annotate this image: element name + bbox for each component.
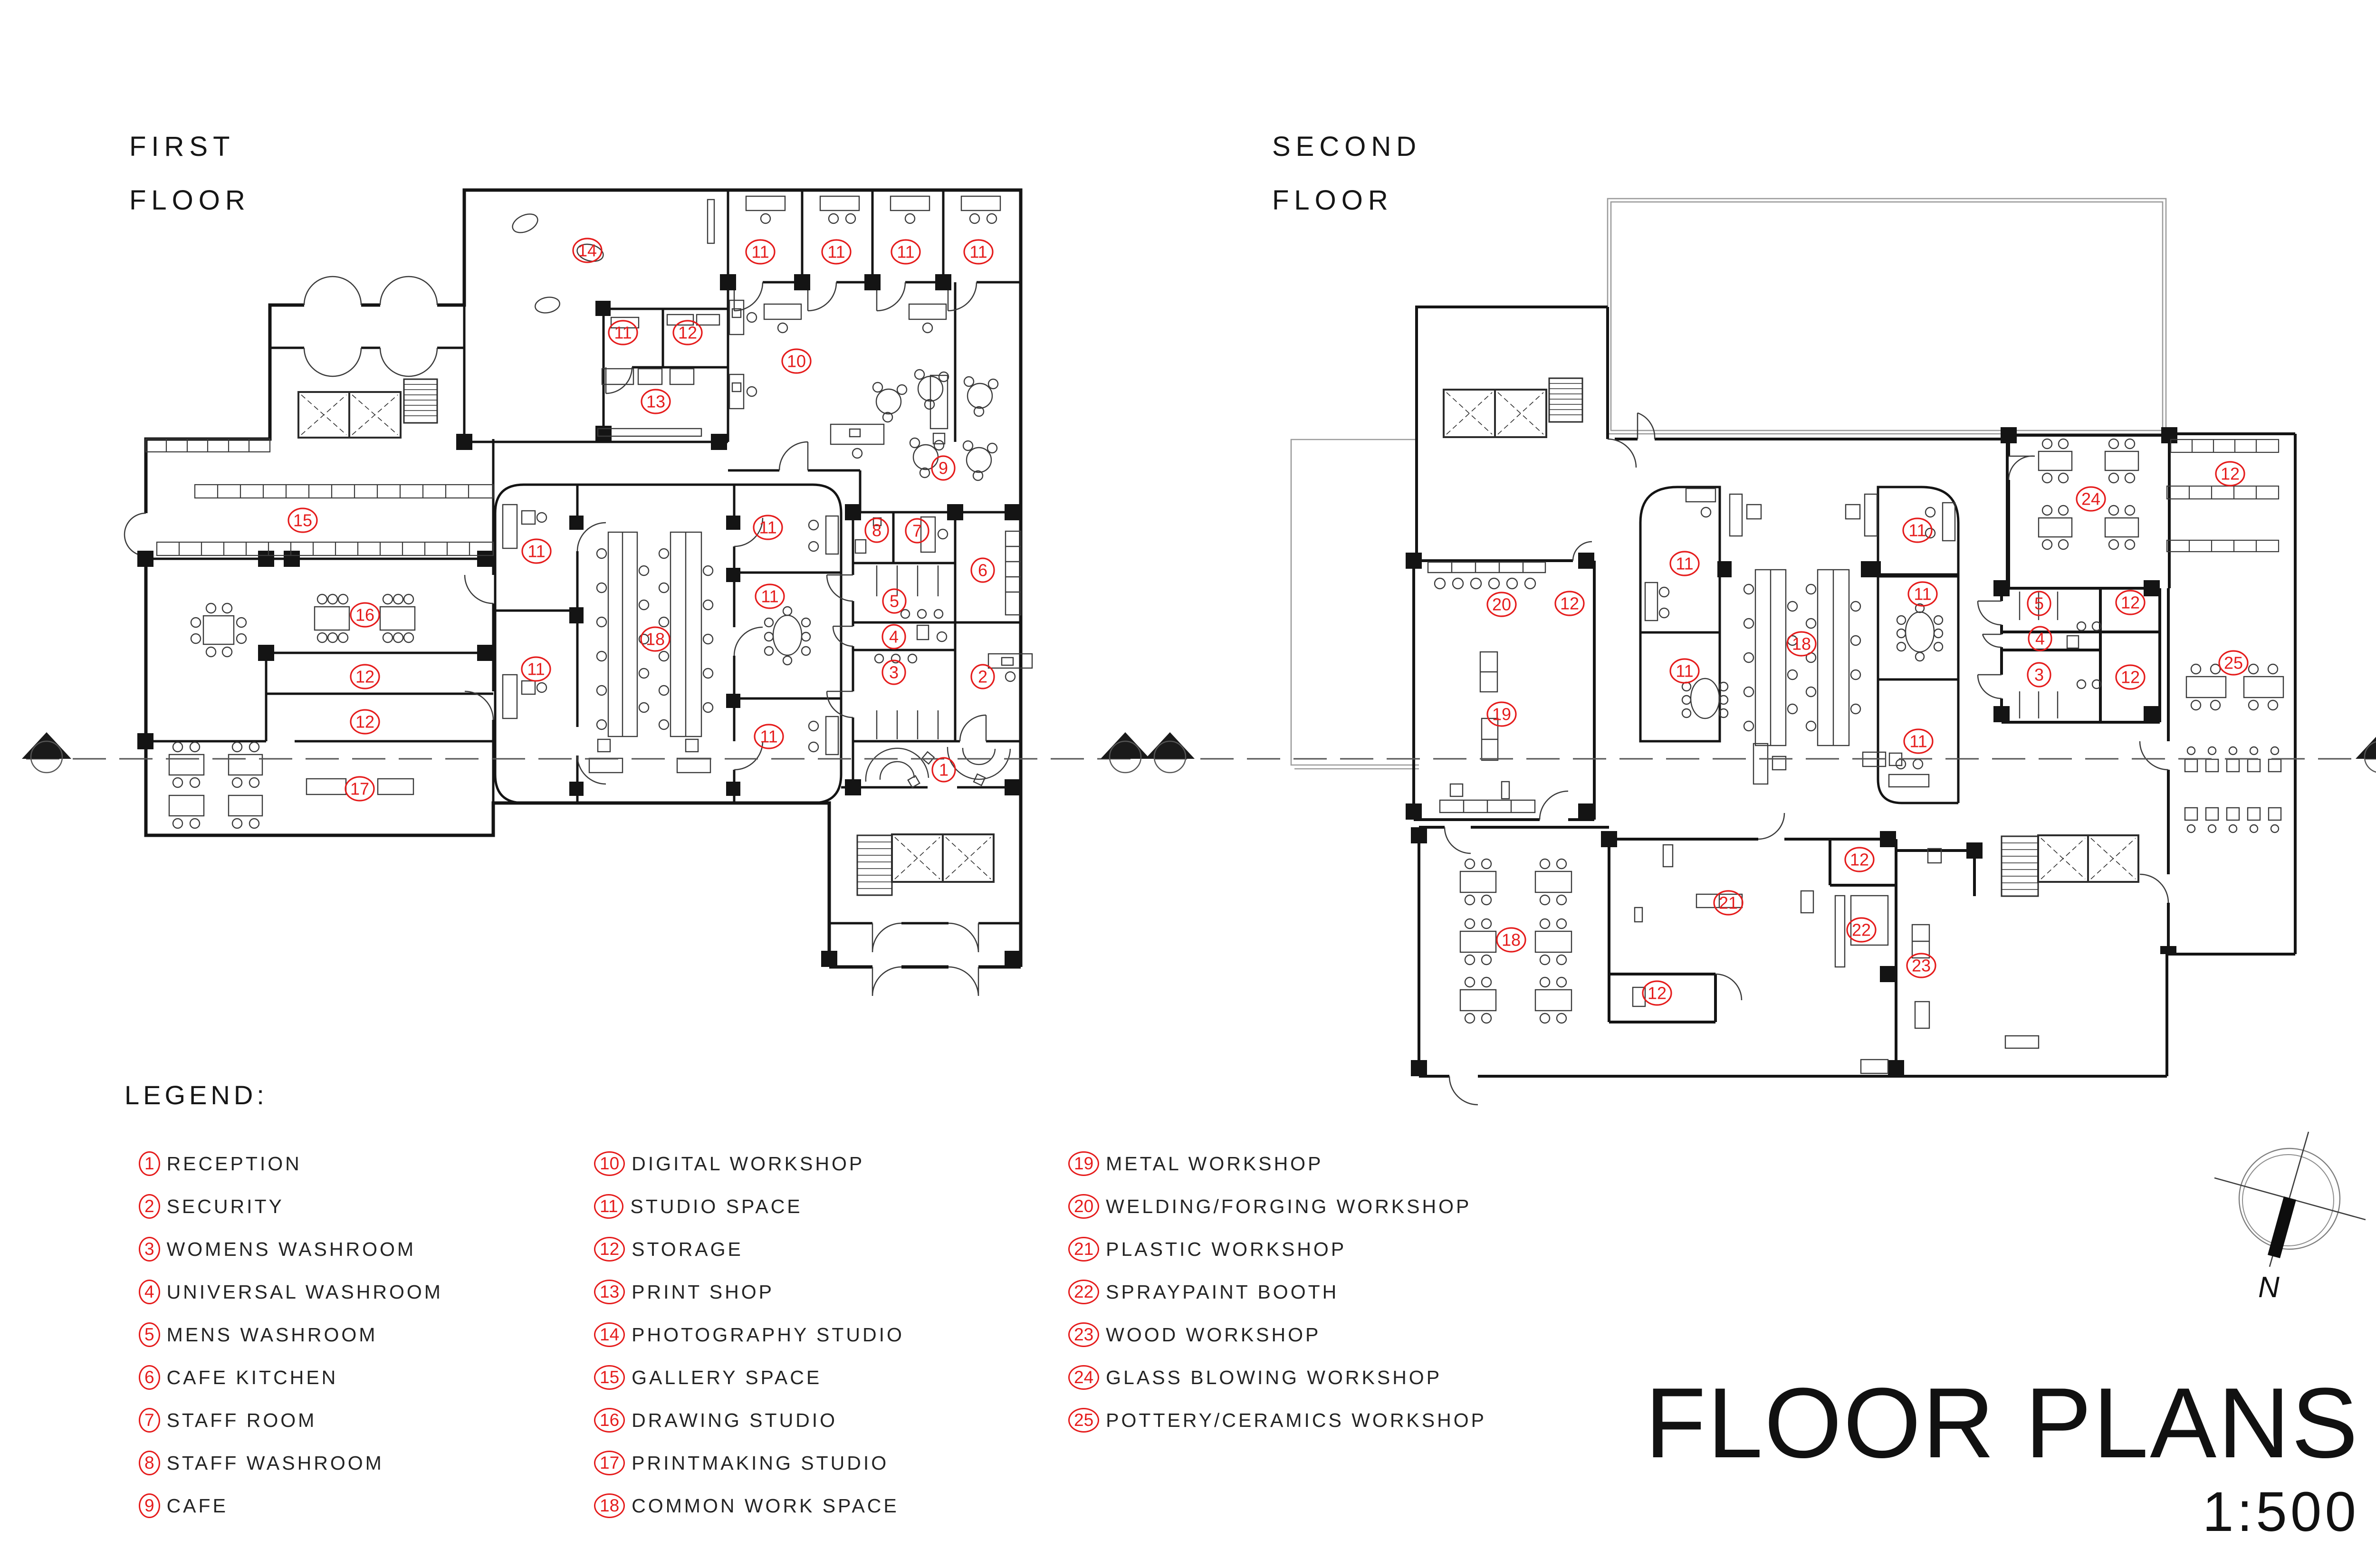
legend-item-number: 20: [1068, 1194, 1099, 1219]
room-marker-number: 12: [2221, 464, 2240, 484]
room-marker-number: 11: [751, 242, 769, 262]
cafe-tables: [873, 370, 998, 480]
legend-item-number: 15: [594, 1365, 625, 1390]
section-marker: [1101, 732, 1150, 773]
room-marker-number: 4: [889, 627, 899, 647]
room-marker-number: 5: [890, 592, 899, 611]
room-marker-number: 3: [889, 663, 899, 682]
first-floor-gallery-bands: [146, 439, 493, 555]
legend-item: 1RECEPTION: [139, 1142, 443, 1185]
legend-item-label: CAFE KITCHEN: [167, 1367, 338, 1389]
legend-column-1: 1RECEPTION2SECURITY3WOMENS WASHROOM4UNIV…: [139, 1142, 443, 1527]
legend-item: 14PHOTOGRAPHY STUDIO: [594, 1313, 904, 1356]
legend-item: 19METAL WORKSHOP: [1068, 1142, 1486, 1185]
legend-item-label: METAL WORKSHOP: [1106, 1153, 1323, 1175]
legend-item-label: UNIVERSAL WASHROOM: [167, 1281, 443, 1303]
legend-item: 9CAFE: [139, 1484, 443, 1527]
legend-item: 7STAFF ROOM: [139, 1399, 443, 1442]
drawing-sheet: N 14111111111112101391511118765161118412…: [0, 0, 2376, 1568]
room-marker-number: 11: [969, 242, 987, 262]
first-floor-interior-walls: [146, 190, 1021, 923]
legend-item-label: POTTERY/CERAMICS WORKSHOP: [1106, 1409, 1486, 1432]
section-marker: [1145, 732, 1195, 773]
room-marker-number: 16: [355, 605, 374, 625]
legend-item-number: 1: [139, 1151, 160, 1176]
room-marker-number: 11: [761, 587, 778, 606]
legend-item: 15GALLERY SPACE: [594, 1356, 904, 1399]
room-marker-number: 9: [939, 459, 948, 478]
legend-item-label: RECEPTION: [167, 1153, 302, 1175]
room-marker-number: 11: [1676, 661, 1693, 681]
legend-item: 18COMMON WORK SPACE: [594, 1484, 904, 1527]
legend-item-label: WOOD WORKSHOP: [1106, 1324, 1321, 1346]
legend-item-label: DIGITAL WORKSHOP: [632, 1153, 864, 1175]
legend-item: 6CAFE KITCHEN: [139, 1356, 443, 1399]
legend-column-3: 19METAL WORKSHOP20WELDING/FORGING WORKSH…: [1068, 1142, 1486, 1442]
second-floor-shelving: [2167, 440, 2279, 552]
legend-item: 17PRINTMAKING STUDIO: [594, 1442, 904, 1484]
pottery-wheels: [2185, 747, 2281, 832]
legend-item-number: 13: [594, 1280, 625, 1304]
legend-item: 12STORAGE: [594, 1228, 904, 1271]
room-marker-number: 11: [759, 518, 776, 537]
legend-item-label: DRAWING STUDIO: [632, 1409, 837, 1432]
north-arrow: N: [2214, 1132, 2366, 1304]
room-marker-number: 11: [1909, 732, 1927, 751]
room-marker-number: 2: [978, 667, 987, 687]
room-marker-number: 18: [646, 630, 665, 649]
legend-item-number: 18: [594, 1493, 625, 1518]
room-marker-number: 11: [614, 323, 632, 343]
room-marker-number: 25: [2224, 653, 2243, 673]
legend-item-number: 19: [1068, 1151, 1099, 1176]
legend-item-label: SECURITY: [167, 1195, 284, 1218]
legend-item-label: PRINTMAKING STUDIO: [632, 1452, 889, 1474]
room-marker-number: 19: [1492, 705, 1511, 724]
room-marker-number: 12: [355, 667, 374, 687]
legend-item: 3WOMENS WASHROOM: [139, 1228, 443, 1271]
room-marker-number: 12: [1560, 594, 1579, 613]
legend-item-label: WOMENS WASHROOM: [167, 1238, 416, 1261]
section-marker: [2356, 732, 2376, 773]
legend-column-2: 10DIGITAL WORKSHOP11STUDIO SPACE12STORAG…: [594, 1142, 904, 1527]
legend-item-label: PHOTOGRAPHY STUDIO: [632, 1324, 904, 1346]
legend-item-label: GALLERY SPACE: [632, 1367, 822, 1389]
room-marker-number: 12: [355, 712, 374, 732]
room-marker-number: 7: [912, 521, 922, 541]
room-marker-number: 17: [350, 779, 369, 799]
legend-item-label: WELDING/FORGING WORKSHOP: [1106, 1195, 1471, 1218]
room-marker-number: 11: [1914, 584, 1931, 604]
room-marker-number: 18: [1792, 634, 1811, 654]
first-floor-markers: 1411111111111210139151111876516111841212…: [288, 239, 994, 801]
legend-item-label: PRINT SHOP: [632, 1281, 774, 1303]
legend-item-number: 25: [1068, 1408, 1099, 1433]
legend-item: 10DIGITAL WORKSHOP: [594, 1142, 904, 1185]
room-marker-number: 18: [1502, 930, 1521, 950]
legend-item: 25POTTERY/CERAMICS WORKSHOP: [1068, 1399, 1486, 1442]
legend-item-number: 4: [139, 1280, 160, 1304]
legend-item-number: 21: [1068, 1237, 1099, 1262]
legend-heading: LEGEND:: [125, 1080, 268, 1110]
title-block: FLOOR PLANS 1:500: [1645, 1373, 2359, 1544]
legend-item: 13PRINT SHOP: [594, 1271, 904, 1313]
legend-item-number: 9: [139, 1493, 160, 1518]
legend-item-label: STORAGE: [632, 1238, 743, 1261]
room-marker-number: 6: [978, 561, 987, 580]
legend-item-number: 5: [139, 1322, 160, 1347]
room-marker-number: 12: [678, 323, 697, 343]
legend-item-number: 2: [139, 1194, 160, 1219]
room-marker-number: 12: [2121, 668, 2140, 687]
legend-item-number: 3: [139, 1237, 160, 1262]
legend-item: 23WOOD WORKSHOP: [1068, 1313, 1486, 1356]
first-floor-label: FIRST FLOOR: [129, 120, 250, 227]
legend-item-number: 24: [1068, 1365, 1099, 1390]
compass-n-label: N: [2258, 1271, 2280, 1304]
room-marker-number: 10: [787, 352, 806, 371]
room-marker-number: 24: [2081, 489, 2100, 509]
legend-item-number: 14: [594, 1322, 625, 1347]
legend-item: 22SPRAYPAINT BOOTH: [1068, 1271, 1486, 1313]
legend-item-label: PLASTIC WORKSHOP: [1106, 1238, 1346, 1261]
sheet-scale: 1:500: [1645, 1480, 2359, 1544]
legend-item: 20WELDING/FORGING WORKSHOP: [1068, 1185, 1486, 1228]
legend-item: 8STAFF WASHROOM: [139, 1442, 443, 1484]
legend-item: 16DRAWING STUDIO: [594, 1399, 904, 1442]
room-marker-number: 11: [527, 660, 545, 679]
legend-item-label: GLASS BLOWING WORKSHOP: [1106, 1367, 1442, 1389]
legend-item-number: 12: [594, 1237, 625, 1262]
legend-item-number: 10: [594, 1151, 625, 1176]
legend-item: 11STUDIO SPACE: [594, 1185, 904, 1228]
room-marker-number: 1: [939, 760, 948, 780]
room-marker-number: 12: [1648, 984, 1667, 1003]
legend-item-number: 17: [594, 1451, 625, 1475]
room-marker-number: 20: [1492, 595, 1511, 614]
first-floor-exterior-walls: [146, 190, 1021, 967]
legend-item: 5MENS WASHROOM: [139, 1313, 443, 1356]
room-marker-number: 14: [578, 241, 597, 260]
room-marker-number: 11: [827, 242, 845, 262]
legend-item-label: STAFF ROOM: [167, 1409, 317, 1432]
legend-item-label: CAFE: [167, 1495, 228, 1517]
legend-item: 4UNIVERSAL WASHROOM: [139, 1271, 443, 1313]
legend-item-number: 11: [594, 1194, 623, 1219]
room-marker-number: 5: [2034, 594, 2044, 613]
room-marker-number: 11: [1676, 554, 1693, 574]
room-marker-number: 21: [1719, 893, 1738, 913]
legend-item-label: MENS WASHROOM: [167, 1324, 378, 1346]
second-floor-columns: [1406, 427, 2177, 1076]
sheet-title: FLOOR PLANS: [1645, 1373, 2359, 1473]
legend-item-number: 16: [594, 1408, 625, 1433]
legend-item: 21PLASTIC WORKSHOP: [1068, 1228, 1486, 1271]
legend-item-label: STAFF WASHROOM: [167, 1452, 384, 1474]
room-marker-number: 12: [1850, 850, 1869, 870]
room-marker-number: 8: [872, 521, 881, 540]
room-marker-number: 11: [897, 242, 914, 262]
room-marker-number: 11: [760, 727, 777, 746]
room-marker-number: 3: [2034, 665, 2044, 685]
section-marker: [22, 732, 71, 773]
room-marker-number: 23: [1912, 956, 1931, 975]
legend-item-number: 8: [139, 1451, 160, 1475]
second-floor-label: SECOND FLOOR: [1272, 120, 1421, 227]
room-marker-number: 22: [1852, 920, 1871, 940]
legend-item-label: SPRAYPAINT BOOTH: [1106, 1281, 1339, 1303]
legend-item-number: 6: [139, 1365, 160, 1390]
room-marker-number: 13: [646, 392, 665, 411]
room-marker-number: 15: [293, 511, 312, 530]
room-marker-number: 12: [2121, 593, 2140, 612]
legend-item-number: 22: [1068, 1280, 1099, 1304]
second-floor-furniture: [1428, 439, 2283, 1073]
legend-item-number: 23: [1068, 1322, 1099, 1347]
room-marker-number: 4: [2035, 629, 2045, 649]
second-floor-markers: 2412111120125121811425113121911122122182…: [1487, 462, 2248, 1005]
legend-item: 24GLASS BLOWING WORKSHOP: [1068, 1356, 1486, 1399]
section-lines: [22, 732, 2376, 773]
legend-item-label: STUDIO SPACE: [630, 1195, 802, 1218]
room-marker-number: 11: [527, 542, 545, 561]
room-marker-number: 11: [1908, 521, 1926, 540]
legend-item-label: COMMON WORK SPACE: [632, 1495, 899, 1517]
legend-item: 2SECURITY: [139, 1185, 443, 1228]
legend-item-number: 7: [139, 1408, 160, 1433]
